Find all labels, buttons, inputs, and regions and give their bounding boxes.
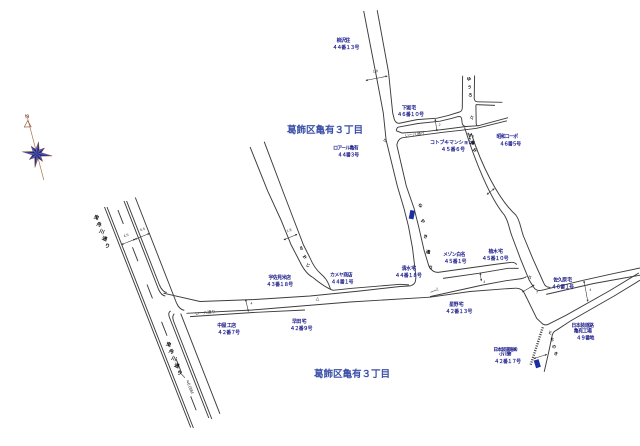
svg-text:４６番１０号: ４６番１０号 — [397, 111, 424, 118]
svg-text:清水 宅: 清水 宅 — [402, 265, 417, 272]
svg-text:1.8: 1.8 — [373, 69, 379, 74]
svg-text:佐久原 宅: 佐久原 宅 — [552, 277, 572, 284]
svg-text:柳沢荘: 柳沢荘 — [337, 37, 351, 44]
svg-text:４６番５号: ４６番５号 — [500, 141, 522, 148]
svg-text:2: 2 — [439, 123, 441, 127]
svg-text:４２番１３号: ４２番１３号 — [446, 308, 473, 315]
svg-text:ロアール亀有: ロアール亀有 — [333, 144, 359, 151]
svg-text:4: 4 — [251, 302, 253, 306]
svg-text:４６番１号: ４６番１号 — [552, 284, 575, 291]
svg-text:植木 宅: 植木 宅 — [487, 248, 503, 255]
svg-text:４５番１号: ４５番１号 — [444, 258, 467, 265]
svg-text:7: 7 — [536, 291, 538, 295]
svg-text:早田 宅: 早田 宅 — [292, 318, 307, 325]
svg-text:昭和コーポ: 昭和コーポ — [497, 133, 519, 140]
svg-text:4: 4 — [483, 280, 485, 284]
svg-text:４２番７号: ４２番７号 — [218, 329, 241, 336]
svg-text:小川寮: 小川寮 — [499, 350, 512, 357]
svg-text:下堀 宅: 下堀 宅 — [402, 105, 417, 112]
svg-text:4: 4 — [590, 288, 592, 292]
svg-text:カメヤ商店: カメヤ商店 — [330, 272, 353, 279]
svg-text:々: 々 — [383, 137, 387, 143]
svg-text:４５番１０号: ４５番１０号 — [482, 255, 509, 262]
svg-text:葛飾区亀有３丁目: 葛飾区亀有３丁目 — [286, 124, 363, 136]
svg-text:葛飾区亀有３丁目: 葛飾区亀有３丁目 — [313, 368, 390, 380]
svg-text:４２番１７号: ４２番１７号 — [494, 358, 521, 365]
svg-text:中屋 工店: 中屋 工店 — [217, 322, 236, 329]
svg-text:亀有工場: 亀有工場 — [574, 327, 592, 334]
svg-text:４４番１号: ４４番１号 — [331, 279, 354, 286]
svg-text:４３番１８号: ４３番１８号 — [266, 281, 293, 288]
svg-text:々: 々 — [527, 274, 532, 280]
svg-text:メゾン白名: メゾン白名 — [443, 251, 466, 258]
svg-text:コトブキマンション: コトブキマンション — [430, 139, 473, 146]
svg-text:４４番１８号: ４４番１８号 — [395, 272, 422, 279]
svg-text:４５番６号: ４５番６号 — [441, 146, 465, 153]
svg-text:４２番９号: ４２番９号 — [290, 325, 313, 332]
svg-text:星野 宅: 星野 宅 — [449, 301, 464, 308]
svg-text:日本装道路: 日本装道路 — [571, 322, 594, 329]
svg-text:宇佐見米店: 宇佐見米店 — [269, 274, 292, 281]
svg-text:４４番３号: ４４番３号 — [338, 152, 360, 159]
svg-text:４９番地: ４９番地 — [576, 334, 594, 341]
svg-text:々: 々 — [469, 115, 474, 122]
svg-text:４４番１３号: ４４番１３号 — [333, 44, 360, 51]
